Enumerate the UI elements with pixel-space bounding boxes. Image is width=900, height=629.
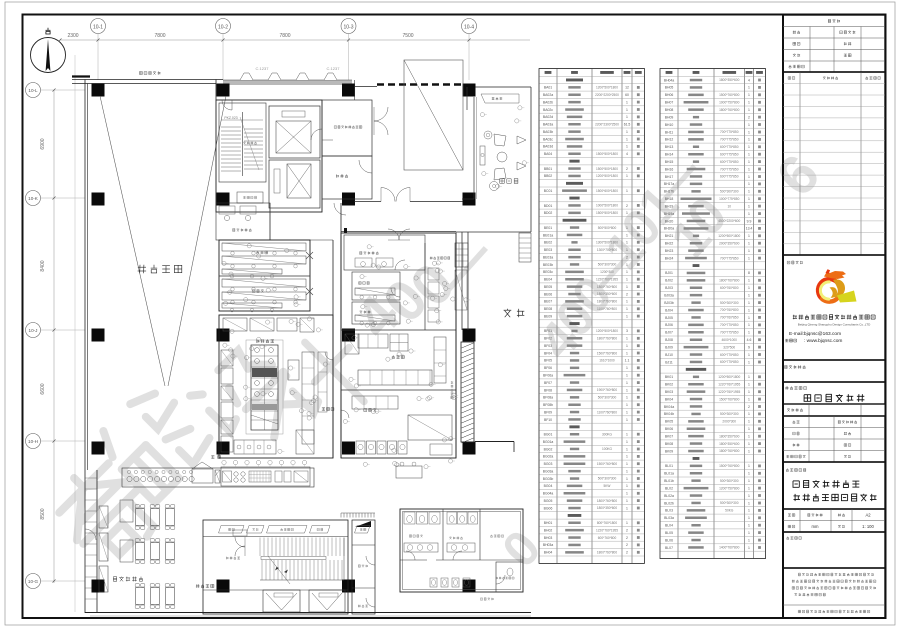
svg-text:10: 10 [727, 204, 731, 208]
svg-text:1200*500*1800: 1200*500*1800 [596, 174, 618, 178]
svg-text:BG01a: BG01a [543, 440, 554, 444]
svg-text:1: 1 [626, 492, 628, 496]
svg-text:BF01: BF01 [544, 329, 552, 333]
svg-text:BH19a: BH19a [664, 212, 674, 216]
svg-text:BJ05: BJ05 [665, 316, 673, 320]
svg-text:600*775*850: 600*775*850 [720, 152, 739, 156]
svg-text:1: 1 [626, 462, 628, 466]
svg-text:1800*350*600: 1800*350*600 [597, 292, 617, 296]
svg-text:1: 1 [748, 293, 750, 297]
svg-text:1: 1 [626, 248, 628, 252]
svg-text:9.9: 9.9 [747, 219, 752, 223]
svg-text:BH24: BH24 [665, 256, 674, 260]
svg-text:1: 1 [748, 130, 750, 134]
svg-text:BL03: BL03 [665, 509, 673, 513]
svg-text:BE02: BE02 [544, 241, 552, 245]
svg-text:1: 1 [748, 190, 750, 194]
svg-text:1500*500*1800: 1500*500*1800 [596, 152, 618, 156]
svg-text:1: 1 [748, 308, 750, 312]
svg-text:320*500: 320*500 [723, 345, 735, 349]
svg-text:BK02: BK02 [665, 383, 673, 387]
svg-text:1: 1 [748, 434, 750, 438]
svg-text:10-H: 10-H [28, 439, 38, 444]
svg-text:1220*760*1955: 1220*760*1955 [596, 528, 618, 532]
svg-text:1: 1 [748, 427, 750, 431]
svg-text:BG04a: BG04a [543, 492, 554, 496]
svg-text:1: 1 [626, 314, 628, 318]
svg-text:BK04b: BK04b [664, 412, 674, 416]
svg-text:700*775*850: 700*775*850 [720, 330, 739, 334]
svg-text:BH21: BH21 [665, 234, 674, 238]
svg-text:1: 1 [626, 396, 628, 400]
svg-text:BK09: BK09 [665, 449, 673, 453]
svg-text:1: 1 [626, 499, 628, 503]
svg-text:BC01: BC01 [544, 189, 553, 193]
svg-text:1: 1 [748, 286, 750, 290]
svg-text:13.4: 13.4 [746, 227, 753, 231]
svg-text:BL05: BL05 [665, 531, 673, 535]
svg-text:60: 60 [625, 93, 629, 97]
svg-text:1610*1000: 1610*1000 [599, 359, 615, 363]
svg-text:BJ07: BJ07 [665, 331, 673, 335]
svg-text:8500: 8500 [40, 508, 46, 519]
svg-text:1: 1 [748, 123, 750, 127]
svg-text:1: 1 [748, 509, 750, 513]
svg-text:500*300*300: 500*300*300 [598, 396, 617, 400]
svg-text:BA03a: BA03a [543, 123, 553, 127]
svg-text:2: 2 [626, 528, 628, 532]
svg-text:700*760*850: 700*760*850 [720, 316, 739, 320]
svg-text:1: 1 [626, 455, 628, 459]
svg-text:1500*760*800: 1500*760*800 [597, 462, 617, 466]
svg-text:7800: 7800 [279, 33, 290, 39]
svg-text:BK05: BK05 [665, 420, 673, 424]
svg-text:BG02a: BG02a [543, 455, 554, 459]
svg-text:10-G: 10-G [28, 579, 39, 584]
svg-text:BE07: BE07 [544, 300, 552, 304]
svg-text:1: 1 [626, 233, 628, 237]
svg-text:BH14: BH14 [665, 153, 674, 157]
svg-text:50KG: 50KG [725, 509, 734, 513]
svg-text:: www.bjqnsc.com: : www.bjqnsc.com [804, 338, 842, 344]
svg-text:2: 2 [748, 115, 750, 119]
svg-text:600*775*850: 600*775*850 [720, 160, 739, 164]
svg-text:BL01b: BL01b [664, 479, 674, 483]
svg-text:1: 1 [626, 381, 628, 385]
svg-text:BH12: BH12 [665, 138, 674, 142]
svg-text:10-3: 10-3 [343, 24, 353, 30]
svg-text:1500*760*800: 1500*760*800 [719, 464, 739, 468]
svg-text:500*300*300: 500*300*300 [720, 301, 739, 305]
svg-text:700*775*850: 700*775*850 [720, 130, 739, 134]
svg-text:1: 1 [626, 433, 628, 437]
svg-text:1800*350*600: 1800*350*600 [719, 78, 739, 82]
svg-text:1: 1 [626, 241, 628, 245]
svg-text:BJ03b: BJ03b [664, 301, 674, 305]
svg-text:1: 1 [626, 263, 628, 267]
svg-text:100KG: 100KG [602, 447, 612, 451]
svg-text:BF08a: BF08a [543, 396, 553, 400]
svg-text:1: 1 [748, 420, 750, 424]
svg-text:C.1237: C.1237 [327, 66, 341, 71]
svg-text:500*300*300: 500*300*300 [598, 477, 617, 481]
svg-text:BF06: BF06 [544, 366, 552, 370]
svg-text:1: 1 [748, 145, 750, 149]
svg-text:BF06a: BF06a [543, 373, 553, 377]
svg-text:1: 1 [748, 531, 750, 535]
svg-text:1: 1 [748, 175, 750, 179]
svg-text:500*500*800: 500*500*800 [598, 226, 617, 230]
svg-text:1: 1 [626, 344, 628, 348]
svg-text:BL02: BL02 [665, 486, 673, 490]
svg-text:BF07: BF07 [544, 381, 552, 385]
svg-text:BK06: BK06 [665, 427, 673, 431]
svg-text:300KG: 300KG [602, 432, 612, 436]
svg-text:BA02b: BA02b [543, 100, 553, 104]
svg-text:1800*350*600: 1800*350*600 [719, 442, 739, 446]
svg-text:1000*500*1800: 1000*500*1800 [596, 204, 618, 208]
svg-text:4.6: 4.6 [747, 338, 752, 342]
svg-text:1: 1 [626, 130, 628, 134]
svg-text:BG05: BG05 [544, 499, 553, 503]
svg-text:1: 1 [748, 323, 750, 327]
svg-text:BB01: BB01 [544, 167, 552, 171]
svg-text:1: 1 [748, 486, 750, 490]
svg-text:BK01: BK01 [665, 375, 673, 379]
svg-text:BF08b: BF08b [543, 403, 553, 407]
svg-text:5KW: 5KW [604, 484, 611, 488]
svg-text:800*760*1800: 800*760*1800 [597, 521, 617, 525]
svg-text:1: 1 [626, 440, 628, 444]
svg-text:BH03: BH03 [544, 536, 553, 540]
svg-text:1: 1 [626, 285, 628, 289]
svg-text:BA01: BA01 [544, 86, 552, 90]
svg-text:1220*760*1955: 1220*760*1955 [718, 382, 740, 386]
svg-text:BE04: BE04 [544, 278, 552, 282]
svg-text:1: 1 [626, 410, 628, 414]
svg-text:1220*760*1955: 1220*760*1955 [596, 277, 618, 281]
svg-text:BJ11: BJ11 [665, 360, 673, 364]
svg-text:1220*760*1955: 1220*760*1955 [718, 390, 740, 394]
svg-text:1800*760*800: 1800*760*800 [597, 551, 617, 555]
svg-text:600*760*800: 600*760*800 [598, 536, 617, 540]
svg-text:1: 1 [748, 86, 750, 90]
svg-text:2000*350*600: 2000*350*600 [719, 241, 739, 245]
svg-text:1: 1 [626, 307, 628, 311]
svg-text:1: 1 [748, 412, 750, 416]
svg-text:2200*2200*2500: 2200*2200*2500 [595, 93, 619, 97]
svg-text:1: 1 [626, 521, 628, 525]
svg-text:BH15: BH15 [665, 160, 674, 164]
svg-text:BH17a: BH17a [664, 182, 674, 186]
svg-text:1300*700*800: 1300*700*800 [597, 248, 617, 252]
svg-text:6900: 6900 [40, 138, 46, 149]
svg-text:1100*760*800: 1100*760*800 [597, 307, 617, 311]
svg-text:BE03c: BE03c [543, 270, 553, 274]
svg-text:1: 1 [626, 418, 628, 422]
svg-text:2300: 2300 [67, 33, 78, 39]
svg-text:1: 1 [748, 279, 750, 283]
svg-text:BJ08: BJ08 [665, 338, 673, 342]
svg-text:BH22: BH22 [665, 242, 674, 246]
svg-text:12: 12 [625, 86, 629, 90]
svg-text:1: 1 [626, 484, 628, 488]
svg-text:700*775*850: 700*775*850 [720, 323, 739, 327]
svg-text:1800*760*800: 1800*760*800 [719, 108, 739, 112]
svg-text:BF03: BF03 [544, 344, 552, 348]
svg-text:BH17: BH17 [665, 175, 674, 179]
svg-text:1200*500*1800: 1200*500*1800 [718, 375, 740, 379]
svg-text:BL01: BL01 [665, 464, 673, 468]
svg-text:BG06: BG06 [544, 506, 553, 510]
svg-text:BL04: BL04 [665, 524, 673, 528]
svg-text:BD02: BD02 [544, 211, 553, 215]
svg-text:1: 1 [626, 300, 628, 304]
svg-text:1: 1 [748, 212, 750, 216]
svg-text:1: 1 [748, 197, 750, 201]
svg-text:1: 1 [626, 226, 628, 230]
svg-text:4: 4 [748, 78, 750, 82]
svg-text:2: 2 [748, 405, 750, 409]
svg-text:2: 2 [626, 204, 628, 208]
svg-text:PKZ.023: PKZ.023 [224, 116, 237, 120]
svg-text:BG04: BG04 [544, 484, 553, 488]
svg-text:1500*760*800: 1500*760*800 [719, 93, 739, 97]
svg-text:1: 1 [748, 501, 750, 505]
svg-text:1500*760*800: 1500*760*800 [597, 351, 617, 355]
svg-text:BH19: BH19 [665, 204, 674, 208]
svg-text:BF04: BF04 [544, 351, 552, 355]
svg-text:1: 1 [626, 366, 628, 370]
svg-text:BE03a: BE03a [543, 255, 553, 259]
svg-text:2: 2 [626, 536, 628, 540]
svg-text:8: 8 [748, 271, 750, 275]
svg-text:500*300*300: 500*300*300 [720, 501, 739, 505]
svg-text:BF10: BF10 [544, 418, 552, 422]
svg-text:BJ09: BJ09 [665, 345, 673, 349]
svg-text:4500*2200*600: 4500*2200*600 [718, 219, 740, 223]
svg-text:BH10: BH10 [665, 123, 674, 127]
svg-text:1: 1 [748, 442, 750, 446]
svg-text:BH01: BH01 [544, 521, 553, 525]
svg-text:1: 1 [626, 403, 628, 407]
svg-text:BG03: BG03 [544, 462, 553, 466]
svg-text:1800*760*800: 1800*760*800 [597, 285, 617, 289]
svg-text:BG02: BG02 [544, 447, 553, 451]
svg-text:BK04: BK04 [665, 397, 673, 401]
svg-text:BA03b: BA03b [543, 130, 553, 134]
svg-text:BA02a: BA02a [543, 93, 553, 97]
svg-text:1: 1 [626, 145, 628, 149]
svg-text:1: 1 [748, 524, 750, 528]
svg-text:2: 2 [626, 543, 628, 547]
svg-text:61.5: 61.5 [624, 123, 631, 127]
svg-text:BF08: BF08 [544, 388, 552, 392]
svg-text:600*775*850: 600*775*850 [720, 175, 739, 179]
svg-text:BH13: BH13 [665, 145, 674, 149]
svg-text:1300*500*1800: 1300*500*1800 [596, 241, 618, 245]
svg-text:BA02d: BA02d [543, 115, 553, 119]
svg-text:BK03: BK03 [665, 390, 673, 394]
svg-text:1400*760*800: 1400*760*800 [719, 546, 739, 550]
svg-text:10-K: 10-K [28, 196, 39, 201]
svg-text:1: 1 [748, 538, 750, 542]
svg-text:1.1: 1.1 [625, 359, 630, 363]
svg-text:700*775*850: 700*775*850 [720, 256, 739, 260]
svg-text:BK07: BK07 [665, 434, 673, 438]
svg-text:BF09: BF09 [544, 410, 552, 414]
svg-text:2: 2 [626, 255, 628, 259]
svg-text:BA03c: BA03c [543, 137, 553, 141]
svg-text:1: 1 [626, 270, 628, 274]
svg-text:BH20: BH20 [665, 219, 674, 223]
svg-text:BH17b: BH17b [664, 190, 674, 194]
svg-text:500*300*300: 500*300*300 [720, 412, 739, 416]
svg-text:600*775*850: 600*775*850 [720, 353, 739, 357]
svg-text:2: 2 [626, 292, 628, 296]
svg-text:1: 1 [748, 383, 750, 387]
svg-text:1: 1 [748, 167, 750, 171]
svg-text:1: 1 [748, 546, 750, 550]
svg-text:BH03a: BH03a [543, 543, 553, 547]
svg-text:1: 1 [748, 204, 750, 208]
svg-text:1200*300: 1200*300 [600, 270, 614, 274]
svg-text:1800*760*800: 1800*760*800 [719, 449, 739, 453]
svg-text:BA02c: BA02c [543, 108, 553, 112]
svg-text:3: 3 [626, 329, 628, 333]
svg-text:BH16: BH16 [665, 167, 674, 171]
svg-text:BJ03a: BJ03a [664, 293, 674, 297]
svg-text:2: 2 [626, 551, 628, 555]
svg-text:BJ04: BJ04 [665, 308, 673, 312]
svg-text:1: 1 [748, 472, 750, 476]
svg-text:10-J: 10-J [29, 328, 38, 333]
svg-text:1800*350*600: 1800*350*600 [719, 434, 739, 438]
svg-text:BL06: BL06 [665, 538, 673, 542]
svg-text:1: 100: 1: 100 [862, 524, 874, 529]
svg-text:1: 1 [748, 101, 750, 105]
svg-text:2: 2 [626, 167, 628, 171]
svg-text:9: 9 [748, 345, 750, 349]
svg-text:10-2: 10-2 [218, 24, 228, 30]
svg-text:1200*750*800: 1200*750*800 [719, 486, 739, 490]
svg-text:1: 1 [748, 390, 750, 394]
svg-text:BG01: BG01 [544, 433, 553, 437]
svg-text:1000*750*800: 1000*750*800 [719, 100, 739, 104]
svg-text:1500*500*1800: 1500*500*1800 [596, 167, 618, 171]
svg-text:BL01a: BL01a [664, 472, 674, 476]
svg-text:BE01: BE01 [544, 226, 552, 230]
svg-text:BJ02: BJ02 [665, 279, 673, 283]
svg-text:BJ06: BJ06 [665, 323, 673, 327]
svg-text:1: 1 [626, 337, 628, 341]
svg-text:BH04: BH04 [544, 551, 553, 555]
svg-text:1200*500*1800: 1200*500*1800 [596, 329, 618, 333]
svg-text:4: 4 [626, 152, 628, 156]
svg-text:1: 1 [748, 316, 750, 320]
svg-text:BA03d: BA03d [543, 145, 553, 149]
svg-text:1: 1 [626, 388, 628, 392]
svg-text:BH20a: BH20a [664, 227, 674, 231]
svg-text:500*300*300: 500*300*300 [598, 263, 617, 267]
svg-text:1: 1 [626, 447, 628, 451]
svg-text:1: 1 [748, 353, 750, 357]
svg-text:BL03a: BL03a [664, 516, 674, 520]
svg-text:1800*760*800: 1800*760*800 [597, 499, 617, 503]
svg-text:1: 1 [626, 278, 628, 282]
svg-text:1: 1 [748, 234, 750, 238]
svg-text:1: 1 [626, 174, 628, 178]
svg-text:1500*600*1800: 1500*600*1800 [596, 189, 618, 193]
svg-text:1200*500*1800: 1200*500*1800 [718, 234, 740, 238]
svg-text:BH09: BH09 [665, 115, 674, 119]
svg-text:BH02: BH02 [544, 528, 553, 532]
svg-text:BH18: BH18 [665, 197, 674, 201]
svg-text:1: 1 [748, 93, 750, 97]
svg-text:E-mail:bjqnsc@163.com: E-mail:bjqnsc@163.com [789, 331, 841, 337]
svg-text:1: 1 [748, 160, 750, 164]
svg-text:1: 1 [748, 108, 750, 112]
svg-text:1: 1 [748, 256, 750, 260]
svg-text:1800*760*800: 1800*760*800 [719, 279, 739, 283]
svg-text:BL02a: BL02a [664, 494, 674, 498]
svg-text:6600: 6600 [40, 383, 46, 394]
svg-text:BF05: BF05 [544, 359, 552, 363]
svg-text:Beijing Qineng Shangchu Design: Beijing Qineng Shangchu Design Consultan… [798, 323, 871, 327]
svg-text:8400: 8400 [40, 260, 46, 271]
svg-text:2000*300: 2000*300 [722, 420, 736, 424]
svg-text:BF02: BF02 [544, 337, 552, 341]
svg-text:10-L: 10-L [28, 88, 38, 93]
svg-text:BH05: BH05 [665, 86, 674, 90]
svg-text:10-1: 10-1 [93, 24, 103, 30]
svg-text:700*775*850: 700*775*850 [720, 138, 739, 142]
svg-text:1: 1 [748, 397, 750, 401]
svg-text:1800*760*800: 1800*760*800 [597, 336, 617, 340]
svg-text:BA04: BA04 [544, 152, 552, 156]
svg-text:600*775*850: 600*775*850 [720, 145, 739, 149]
svg-text:1000*775*850: 1000*775*850 [719, 197, 739, 201]
svg-text:BL07: BL07 [665, 546, 673, 550]
svg-text:1: 1 [748, 249, 750, 253]
svg-text:BD01: BD01 [544, 204, 553, 208]
svg-text:1: 1 [626, 477, 628, 481]
svg-text:1: 1 [626, 115, 628, 119]
svg-text:BH04a: BH04a [664, 78, 674, 82]
svg-text:600*775*850: 600*775*850 [720, 360, 739, 364]
svg-text:1: 1 [626, 100, 628, 104]
svg-text:BH11: BH11 [665, 130, 673, 134]
svg-text:BE05: BE05 [544, 285, 552, 289]
svg-text:1: 1 [626, 108, 628, 112]
svg-text:BH07: BH07 [665, 101, 674, 105]
svg-text:4600*1000: 4600*1000 [722, 338, 738, 342]
svg-text:1100*760*800: 1100*760*800 [597, 410, 617, 414]
svg-text:600*760*800: 600*760*800 [720, 286, 739, 290]
svg-text:1: 1 [748, 464, 750, 468]
svg-text:700*760*800: 700*760*800 [720, 308, 739, 312]
svg-text:1800*760*800: 1800*760*800 [597, 300, 617, 304]
svg-text:1: 1 [626, 351, 628, 355]
svg-text:1800*350*600: 1800*350*600 [597, 506, 617, 510]
svg-text:BB02: BB02 [544, 174, 552, 178]
svg-text:BG03b: BG03b [543, 477, 554, 481]
svg-text:500*300*300: 500*300*300 [720, 190, 739, 194]
svg-text:1: 1 [748, 494, 750, 498]
svg-text:C.1237: C.1237 [256, 66, 270, 71]
svg-text:1: 1 [748, 516, 750, 520]
svg-text:1: 1 [626, 189, 628, 193]
